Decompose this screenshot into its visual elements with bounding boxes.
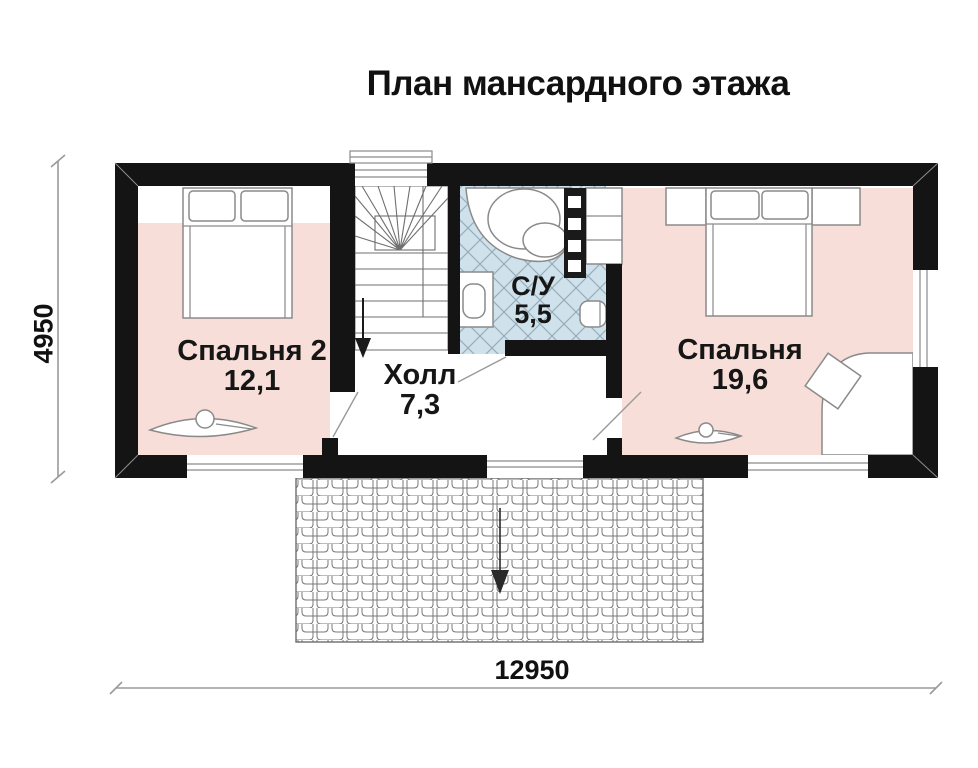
bed-icon-left xyxy=(183,188,292,318)
porch-roof xyxy=(296,478,703,642)
balcony-door-window xyxy=(487,455,583,478)
window-right-wall xyxy=(913,270,938,367)
room-area-bathroom: 5,5 xyxy=(511,300,555,328)
room-name-bedroom2: Спальня 2 xyxy=(177,336,326,366)
floor-plan-canvas: План мансардного этажа Спальня 2 12,1 Хо… xyxy=(0,0,978,768)
room-label-hall: Холл 7,3 xyxy=(384,360,457,420)
toilet-icon xyxy=(580,301,606,327)
floor-plan-drawing xyxy=(0,0,978,768)
dimension-value-width: 12950 xyxy=(494,655,569,686)
vent-shaft-icon xyxy=(564,188,586,278)
plan-title: План мансардного этажа xyxy=(367,64,790,104)
room-label-bedroom1: Спальня 19,6 xyxy=(677,335,802,395)
room-area-bedroom2: 12,1 xyxy=(177,366,326,396)
bed-icon-right xyxy=(706,188,812,316)
nightstand-icon-right xyxy=(812,188,860,225)
room-name-hall: Холл xyxy=(384,360,457,390)
room-label-bedroom2: Спальня 2 12,1 xyxy=(177,336,326,396)
window-bottom-left xyxy=(187,455,303,478)
room-label-bathroom: С/У 5,5 xyxy=(511,272,555,328)
room-name-bathroom: С/У xyxy=(511,272,555,300)
dimension-value-depth: 4950 xyxy=(29,304,60,364)
nightstand-icon-left xyxy=(666,188,706,225)
wardrobe-shelves-icon xyxy=(586,188,622,264)
room-name-bedroom1: Спальня xyxy=(677,335,802,365)
sink-icon xyxy=(457,272,493,327)
staircase-icon xyxy=(355,186,448,358)
window-bottom-right xyxy=(748,455,868,478)
room-area-hall: 7,3 xyxy=(384,390,457,420)
room-area-bedroom1: 19,6 xyxy=(677,365,802,395)
window-top xyxy=(350,151,432,186)
